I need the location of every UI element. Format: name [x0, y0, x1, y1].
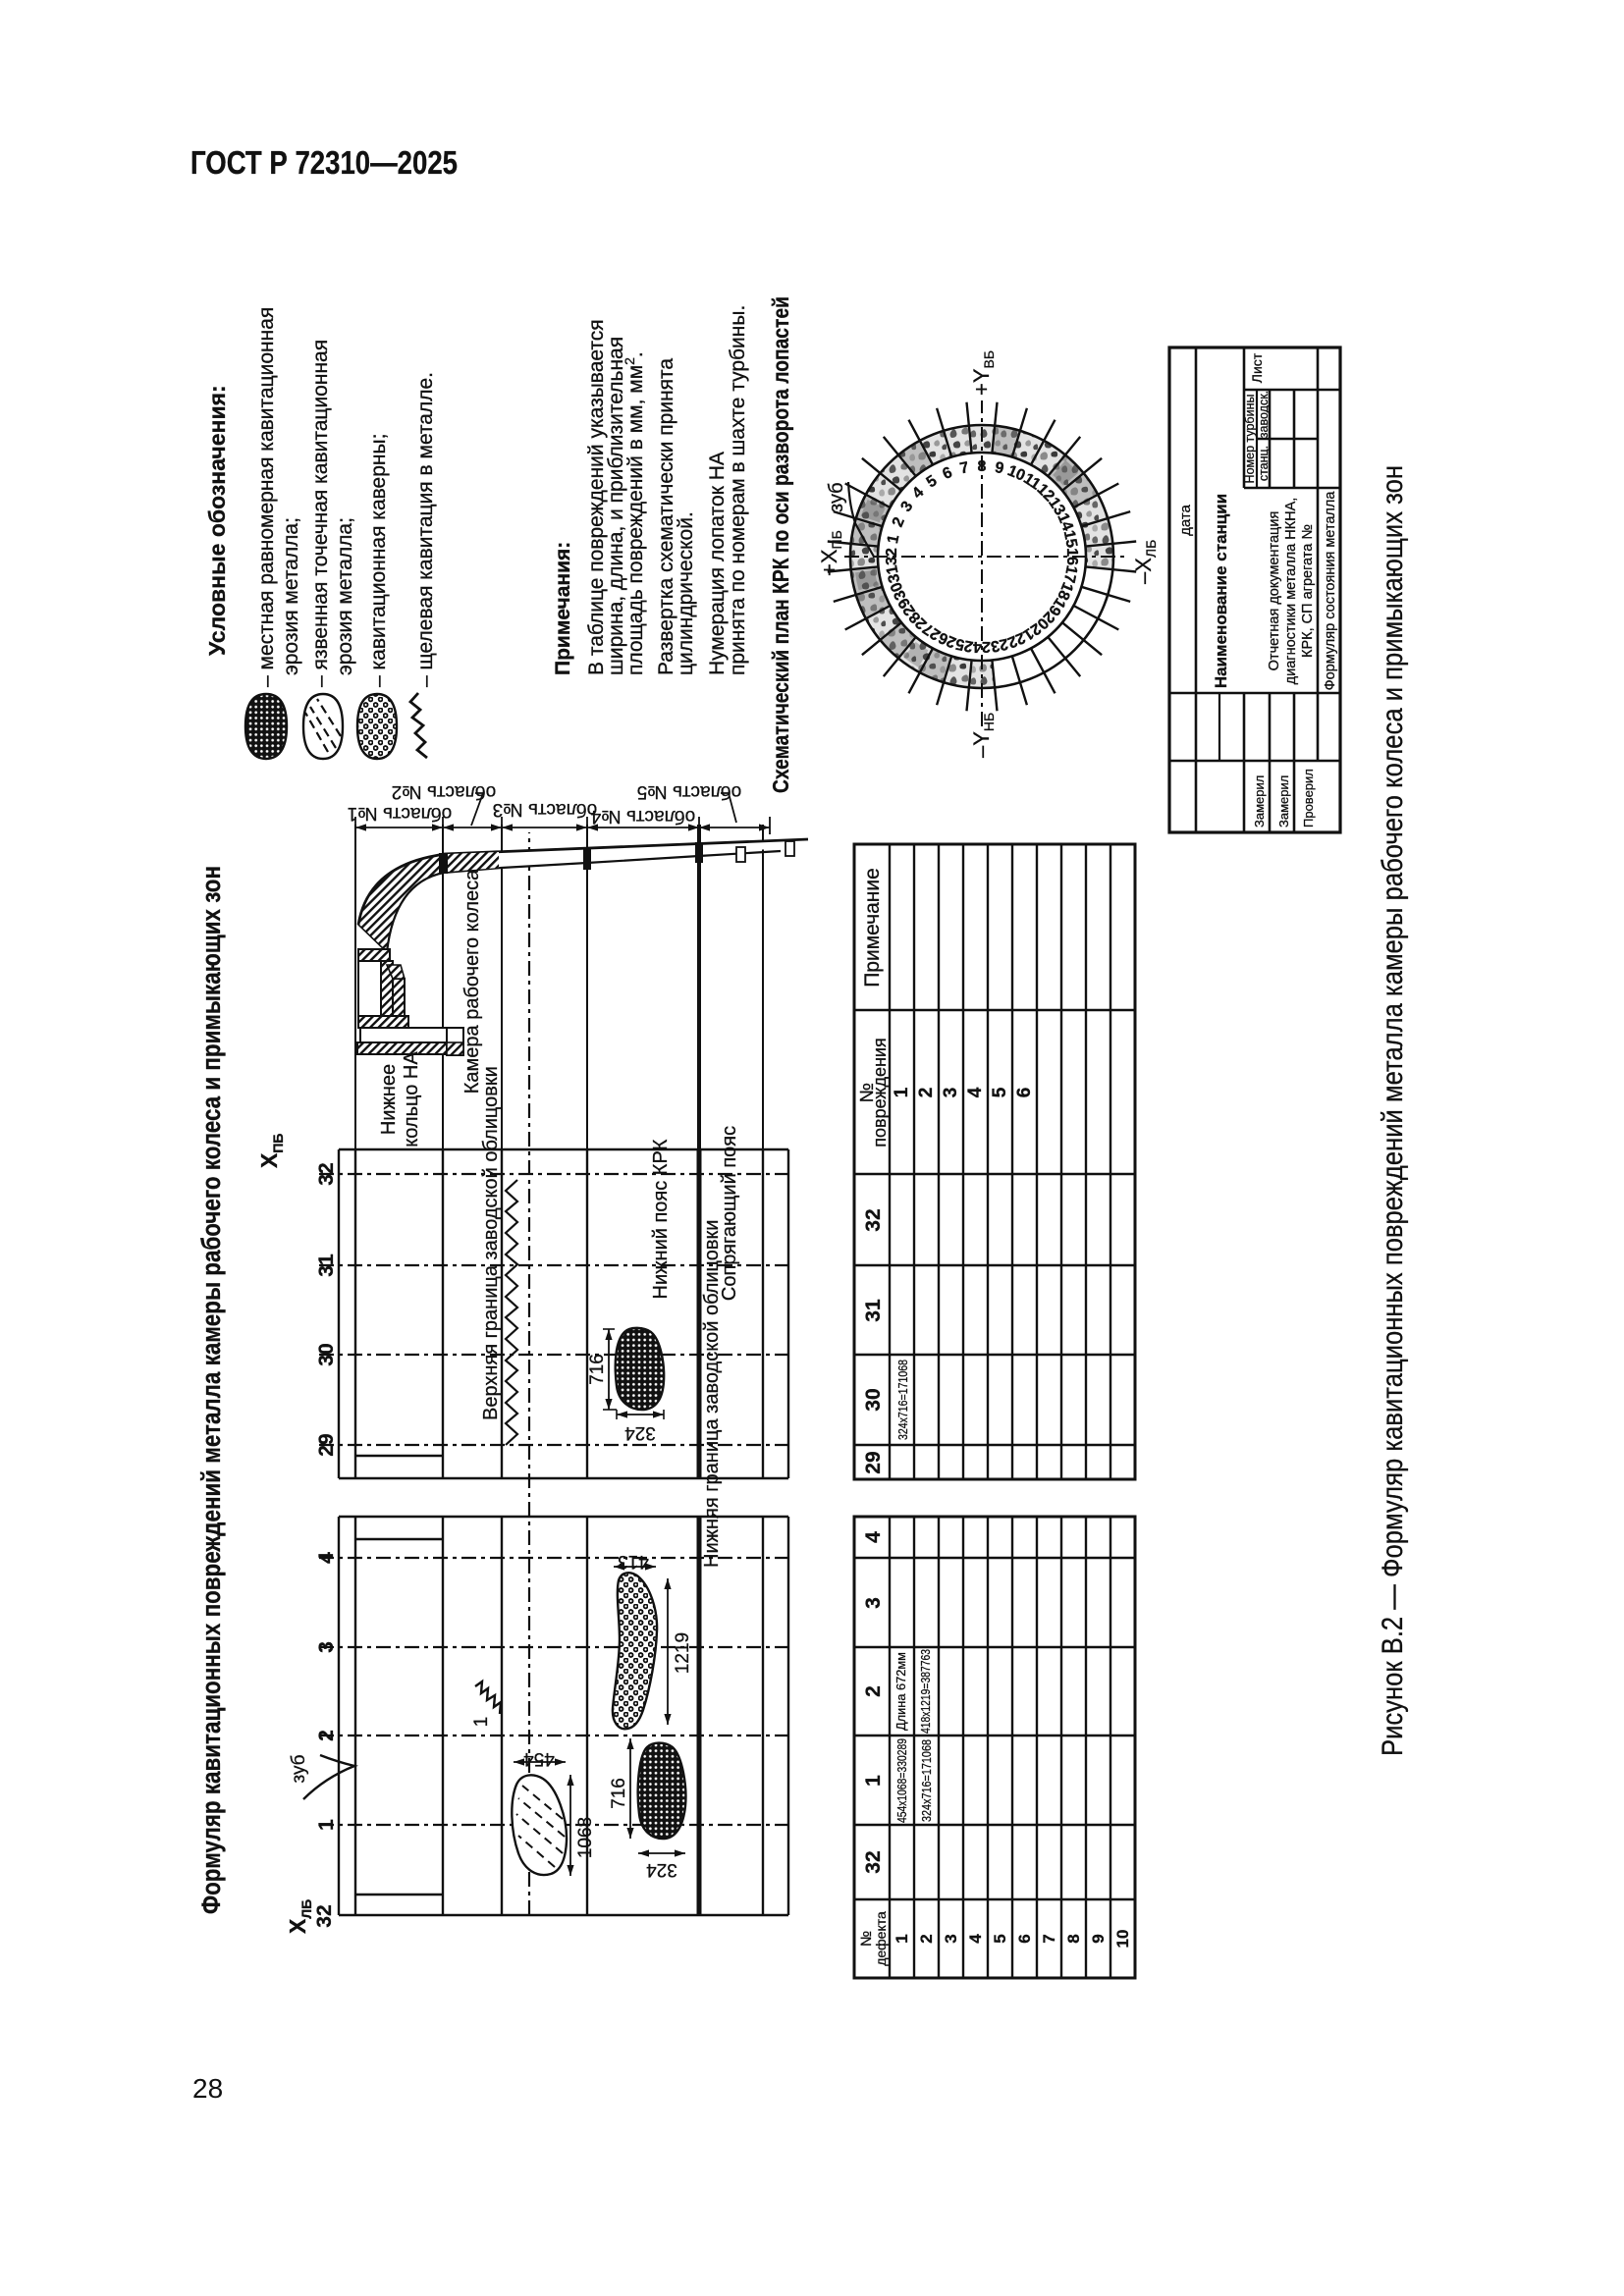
svg-text:Номер турбины: Номер турбины	[1243, 395, 1257, 484]
svg-text:1: 1	[885, 533, 902, 545]
svg-text:Сопрягающий пояс: Сопрягающий пояс	[719, 1126, 740, 1301]
svg-text:23: 23	[989, 635, 1009, 655]
svg-text:3: 3	[897, 499, 916, 515]
svg-text:–XЛБ: –XЛБ	[1131, 540, 1159, 584]
svg-text:30: 30	[315, 1343, 338, 1365]
svg-text:область №5: область №5	[637, 781, 742, 802]
svg-text:324х716=171068: 324х716=171068	[919, 1739, 934, 1822]
svg-text:8: 8	[1064, 1934, 1083, 1943]
svg-text:1: 1	[893, 1934, 911, 1943]
svg-text:область №4: область №4	[590, 806, 695, 827]
svg-text:принята по номерам в шахте тур: принята по номерам в шахте турбины.	[727, 305, 749, 675]
svg-text:XПБ: XПБ	[256, 1134, 286, 1168]
svg-text:Проверил: Проверил	[1301, 769, 1316, 828]
svg-text:15: 15	[1060, 529, 1080, 550]
svg-text:Лист: Лист	[1249, 352, 1265, 383]
svg-text:31: 31	[315, 1254, 338, 1277]
svg-text:7: 7	[958, 459, 970, 477]
svg-text:2: 2	[916, 1088, 937, 1098]
svg-text:площадь повреждений в мм, мм2.: площадь повреждений в мм, мм2.	[622, 351, 647, 675]
svg-text:9: 9	[994, 459, 1005, 477]
svg-text:324: 324	[624, 1422, 656, 1443]
svg-text:КРК, СП агрегата №: КРК, СП агрегата №	[1300, 524, 1316, 658]
svg-text:дефекта: дефекта	[873, 1911, 889, 1966]
svg-text:3: 3	[941, 1088, 961, 1098]
svg-text:Условные обозначения:: Условные обозначения:	[204, 385, 230, 656]
svg-text:Нумерация лопаток НА: Нумерация лопаток НА	[706, 452, 729, 675]
svg-text:30: 30	[862, 1388, 885, 1411]
svg-text:454х1068=330289: 454х1068=330289	[894, 1738, 909, 1823]
svg-text:31: 31	[862, 1299, 885, 1322]
svg-text:зуб: зуб	[826, 482, 847, 512]
svg-text:1: 1	[315, 1819, 338, 1831]
svg-text:6: 6	[941, 464, 955, 483]
svg-text:32: 32	[313, 1904, 336, 1927]
svg-text:2: 2	[315, 1730, 338, 1741]
svg-text:Замерил: Замерил	[1252, 775, 1267, 828]
svg-text:9: 9	[1089, 1934, 1108, 1943]
svg-text:заводск.: заводск.	[1257, 391, 1271, 438]
svg-text:454: 454	[523, 1748, 555, 1769]
svg-text:Формуляр состояния металла: Формуляр состояния металла	[1323, 491, 1338, 691]
svg-text:7: 7	[1040, 1934, 1058, 1943]
svg-text:Примечание: Примечание	[861, 868, 884, 988]
svg-text:4: 4	[315, 1552, 338, 1564]
svg-text:29: 29	[315, 1433, 338, 1456]
svg-text:зуб: зуб	[289, 1754, 309, 1783]
svg-text:Длина 672мм: Длина 672мм	[893, 1652, 908, 1731]
svg-text:XЛБ: XЛБ	[285, 1899, 314, 1934]
svg-text:4: 4	[966, 1934, 985, 1944]
svg-text:+XПБ: +XПБ	[817, 530, 844, 576]
svg-text:Формуляр кавитационных поврежд: Формуляр кавитационных повреждений метал…	[196, 866, 226, 1914]
svg-text:повреждения: повреждения	[870, 1038, 890, 1147]
svg-text:3: 3	[315, 1641, 338, 1653]
svg-text:413: 413	[618, 1551, 649, 1572]
svg-text:диагностики металла НКНА,: диагностики металла НКНА,	[1283, 498, 1299, 685]
svg-text:4: 4	[909, 484, 927, 502]
svg-text:эрозия металла;: эрозия металла;	[334, 517, 356, 675]
svg-text:– язвенная точечная кавитацион: – язвенная точечная кавитационная	[309, 340, 332, 687]
svg-text:Верхняя граница заводской обли: Верхняя граница заводской облицовки	[480, 1066, 502, 1420]
svg-text:Камера рабочего колеса: Камера рабочего колеса	[461, 869, 483, 1094]
svg-text:область №1: область №1	[348, 803, 453, 824]
svg-text:6: 6	[1015, 1934, 1034, 1943]
svg-text:– кавитационная каверны;: – кавитационная каверны;	[367, 434, 390, 687]
svg-text:418х1219=387763: 418х1219=387763	[918, 1649, 933, 1734]
svg-text:716: 716	[609, 1778, 629, 1809]
svg-text:Наименование станции: Наименование станции	[1212, 494, 1230, 688]
svg-text:Отчетная документация: Отчетная документация	[1267, 511, 1282, 671]
svg-text:– местная равномерная кавитаци: – местная равномерная кавитационная	[255, 307, 278, 687]
svg-text:Схематический план КРК по оси: Схематический план КРК по оси разворота …	[768, 296, 793, 793]
svg-text:станц.: станц.	[1257, 446, 1271, 481]
svg-text:Нижний пояс КРК: Нижний пояс КРК	[650, 1139, 672, 1299]
svg-text:цилиндрической.: цилиндрической.	[675, 511, 697, 675]
svg-text:Замерил: Замерил	[1276, 775, 1291, 828]
svg-text:324х716=171068: 324х716=171068	[895, 1360, 910, 1440]
svg-text:–YНБ: –YНБ	[969, 713, 997, 758]
svg-text:5: 5	[991, 1934, 1009, 1943]
svg-text:5: 5	[924, 472, 941, 491]
svg-text:1: 1	[862, 1775, 885, 1787]
svg-text:1068: 1068	[575, 1817, 596, 1858]
svg-text:3: 3	[862, 1597, 885, 1609]
svg-text:дата: дата	[1177, 504, 1194, 535]
svg-text:– щелевая кавитация в металле.: – щелевая кавитация в металле.	[414, 372, 437, 687]
svg-text:29: 29	[862, 1451, 885, 1473]
svg-text:2: 2	[890, 515, 908, 530]
svg-text:кольцо НА: кольцо НА	[401, 1051, 422, 1148]
svg-text:ГОСТ Р 72310—2025: ГОСТ Р 72310—2025	[190, 144, 458, 181]
svg-text:32: 32	[315, 1162, 338, 1185]
svg-text:716: 716	[587, 1354, 608, 1385]
svg-text:4: 4	[965, 1087, 986, 1097]
svg-text:область №3: область №3	[493, 799, 598, 820]
svg-text:1: 1	[892, 1087, 912, 1097]
svg-text:Рисунок В.2 — Формуляр кавитац: Рисунок В.2 — Формуляр кавитационных пов…	[1377, 465, 1409, 1756]
svg-text:2: 2	[862, 1685, 885, 1697]
svg-text:1: 1	[471, 1717, 492, 1728]
svg-text:31: 31	[884, 563, 903, 584]
svg-text:32: 32	[862, 1850, 885, 1873]
svg-text:5: 5	[990, 1087, 1010, 1097]
svg-text:3: 3	[942, 1934, 960, 1943]
svg-text:2: 2	[917, 1934, 936, 1943]
svg-text:Нижнее: Нижнее	[378, 1064, 400, 1135]
svg-text:+YВБ: +YВБ	[969, 350, 997, 396]
svg-text:1219: 1219	[673, 1632, 693, 1674]
svg-text:32: 32	[862, 1208, 885, 1231]
svg-text:10: 10	[1113, 1930, 1132, 1949]
svg-text:эрозия металла;: эрозия металла;	[280, 517, 302, 675]
svg-text:Примечания:: Примечания:	[552, 542, 574, 675]
svg-text:4: 4	[862, 1531, 885, 1543]
svg-text:324: 324	[646, 1859, 677, 1880]
svg-text:6: 6	[1014, 1088, 1035, 1098]
